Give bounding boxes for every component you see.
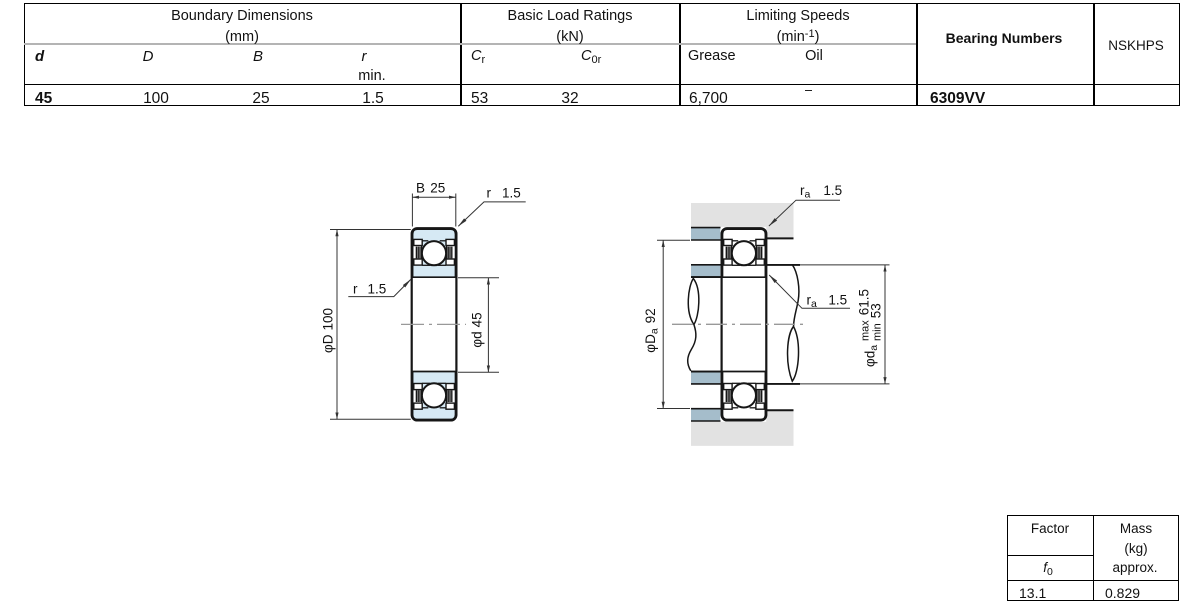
svg-text:φda: φda (863, 345, 881, 367)
svg-text:r1.5: r1.5 (353, 281, 386, 296)
svg-text:ra1.5: ra1.5 (807, 292, 848, 310)
svg-text:φDa92: φDa92 (643, 308, 661, 352)
svg-text:B25: B25 (416, 181, 445, 196)
svg-text:φD100: φD100 (321, 308, 336, 353)
svg-text:ra1.5: ra1.5 (800, 183, 842, 201)
svg-text:r1.5: r1.5 (487, 186, 521, 201)
svg-text:φd45: φd45 (470, 312, 485, 347)
